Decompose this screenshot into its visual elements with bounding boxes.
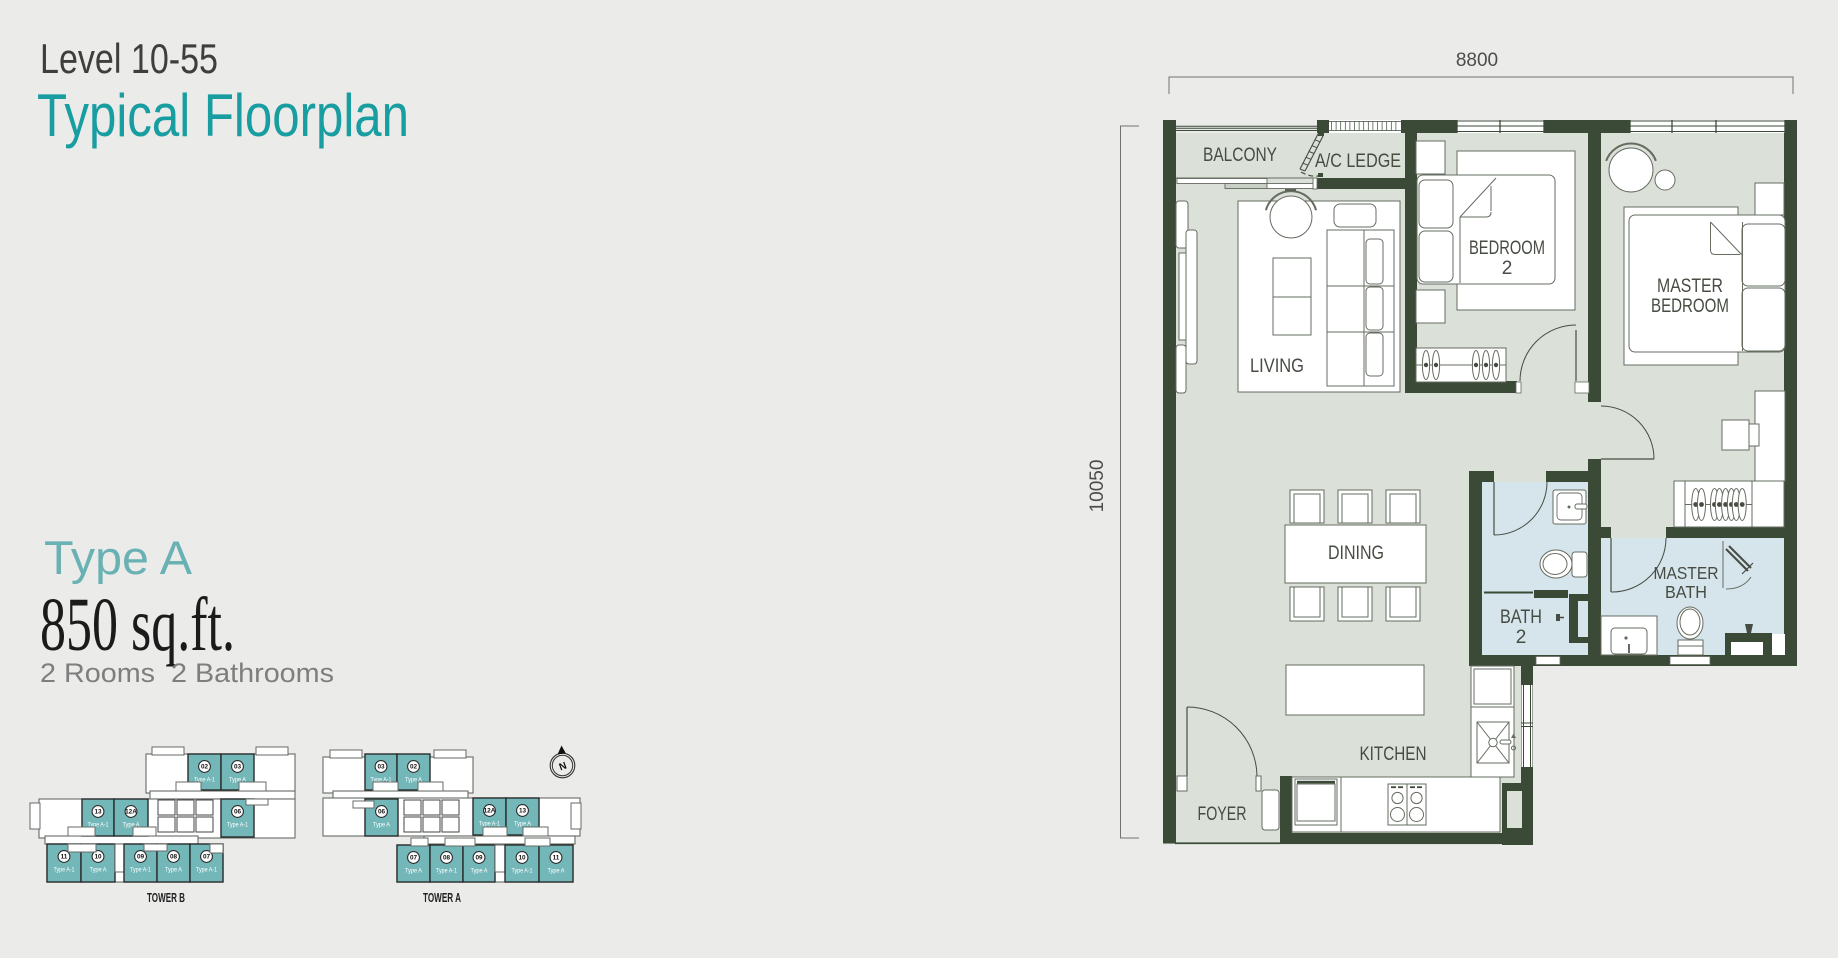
svg-text:MASTER: MASTER: [1654, 563, 1719, 583]
svg-text:BATH: BATH: [1500, 607, 1542, 628]
svg-text:Type A: Type A: [405, 868, 423, 875]
svg-text:Type A: Type A: [373, 822, 391, 829]
svg-text:8800: 8800: [1456, 50, 1498, 71]
svg-text:2: 2: [1502, 258, 1513, 279]
svg-text:Typical Floorplan: Typical Floorplan: [37, 82, 409, 149]
svg-text:850 sq.ft.: 850 sq.ft.: [40, 583, 235, 667]
svg-text:BEDROOM: BEDROOM: [1469, 238, 1545, 259]
svg-text:Type A: Type A: [165, 867, 183, 874]
svg-text:11: 11: [553, 855, 560, 862]
svg-text:DINING: DINING: [1328, 543, 1384, 564]
svg-text:TOWER B: TOWER B: [147, 891, 185, 905]
svg-text:09: 09: [475, 855, 483, 862]
svg-text:02: 02: [201, 764, 209, 771]
svg-text:2 Rooms 2 Bathrooms: 2 Rooms 2 Bathrooms: [40, 658, 334, 688]
svg-text:10: 10: [94, 854, 102, 861]
svg-text:Type A-1: Type A-1: [54, 867, 75, 874]
svg-text:13: 13: [94, 809, 102, 816]
svg-text:03: 03: [234, 764, 242, 771]
svg-text:Type A: Type A: [548, 868, 566, 875]
svg-text:12A: 12A: [125, 809, 137, 816]
svg-text:BATH: BATH: [1665, 582, 1707, 602]
svg-text:LIVING: LIVING: [1250, 356, 1304, 377]
svg-text:Type A-1: Type A-1: [479, 821, 500, 828]
svg-text:MASTER: MASTER: [1657, 276, 1723, 297]
svg-text:Type A: Type A: [514, 821, 532, 828]
svg-text:08: 08: [170, 854, 178, 861]
svg-text:BALCONY: BALCONY: [1203, 145, 1277, 166]
svg-text:06: 06: [378, 809, 386, 816]
svg-text:Type A-1: Type A-1: [512, 868, 533, 875]
svg-text:10050: 10050: [1087, 460, 1108, 513]
svg-text:Type A: Type A: [471, 868, 489, 875]
svg-text:A/C LEDGE: A/C LEDGE: [1315, 151, 1401, 172]
svg-text:03: 03: [377, 764, 385, 771]
svg-text:09: 09: [137, 854, 145, 861]
svg-text:Type A: Type A: [90, 867, 108, 874]
svg-text:Level 10-55: Level 10-55: [40, 35, 218, 82]
svg-text:11: 11: [61, 854, 68, 861]
svg-text:FOYER: FOYER: [1198, 804, 1247, 825]
svg-text:06: 06: [234, 809, 242, 816]
svg-text:Type A: Type A: [44, 531, 193, 584]
svg-text:2: 2: [1516, 627, 1527, 648]
svg-text:02: 02: [410, 764, 418, 771]
svg-text:Type A-1: Type A-1: [436, 868, 457, 875]
svg-text:TOWER A: TOWER A: [423, 891, 461, 905]
svg-text:13: 13: [519, 808, 527, 815]
svg-text:10: 10: [518, 855, 526, 862]
svg-text:Type A-1: Type A-1: [196, 867, 217, 874]
svg-text:07: 07: [410, 855, 418, 862]
svg-text:08: 08: [443, 855, 451, 862]
svg-text:07: 07: [203, 854, 211, 861]
svg-text:BEDROOM: BEDROOM: [1651, 296, 1729, 317]
svg-text:KITCHEN: KITCHEN: [1360, 744, 1427, 765]
svg-text:12A: 12A: [484, 808, 496, 815]
svg-text:Type A-1: Type A-1: [227, 822, 248, 829]
svg-text:Type A-1: Type A-1: [130, 867, 151, 874]
